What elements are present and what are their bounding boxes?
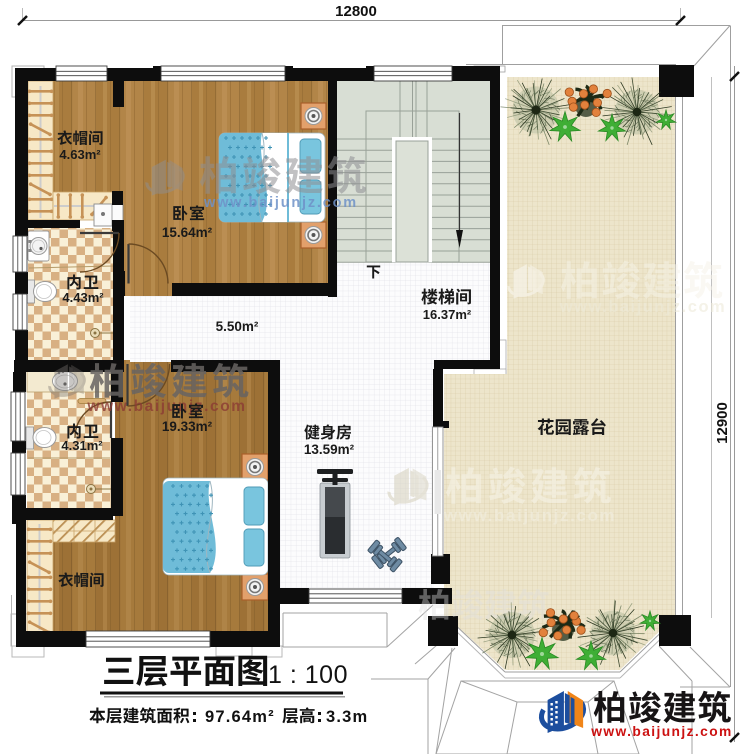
svg-text:1 : 100: 1 : 100 bbox=[268, 661, 348, 689]
svg-text:www.baijunjz.com: www.baijunjz.com bbox=[443, 506, 616, 525]
svg-text:www.baijunjz.com: www.baijunjz.com bbox=[86, 398, 246, 415]
svg-text:www.baijunjz.com: www.baijunjz.com bbox=[559, 298, 726, 316]
svg-text:www.baijunjz.com: www.baijunjz.com bbox=[203, 195, 358, 211]
svg-text:4.63m²: 4.63m² bbox=[59, 147, 101, 162]
svg-text:13.59m²: 13.59m² bbox=[304, 442, 355, 457]
svg-text:15.64m²: 15.64m² bbox=[162, 225, 213, 240]
svg-text:16.37m²: 16.37m² bbox=[423, 307, 472, 322]
svg-text:12800: 12800 bbox=[335, 3, 377, 20]
svg-text:12900: 12900 bbox=[714, 402, 731, 444]
svg-text:www.baijunjz.com: www.baijunjz.com bbox=[590, 724, 732, 739]
svg-text:4.31m²: 4.31m² bbox=[61, 438, 103, 453]
svg-text:19.33m²: 19.33m² bbox=[162, 419, 213, 434]
svg-text:4.43m²: 4.43m² bbox=[62, 290, 104, 305]
svg-text:3.3m: 3.3m bbox=[326, 708, 368, 726]
svg-text:97.64m²: 97.64m² bbox=[205, 708, 275, 726]
svg-text:5.50m²: 5.50m² bbox=[216, 319, 259, 334]
